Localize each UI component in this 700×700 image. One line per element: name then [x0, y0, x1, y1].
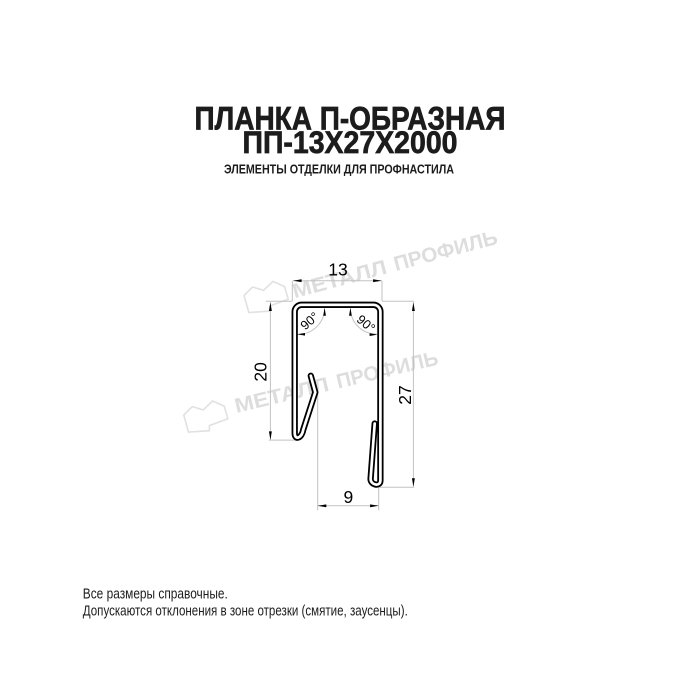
svg-text:ПРОФИЛЬ: ПРОФИЛЬ — [334, 347, 440, 394]
svg-text:90°: 90° — [297, 309, 321, 333]
svg-text:13: 13 — [328, 260, 347, 280]
svg-text:20: 20 — [250, 362, 270, 382]
svg-text:ПРОФИЛЬ: ПРОФИЛЬ — [391, 226, 500, 276]
svg-text:ПП-13Х27Х2000: ПП-13Х27Х2000 — [243, 125, 458, 160]
svg-text:ЭЛЕМЕНТЫ ОТДЕЛКИ ДЛЯ ПРОФНАСТИ: ЭЛЕМЕНТЫ ОТДЕЛКИ ДЛЯ ПРОФНАСТИЛА — [224, 162, 454, 177]
svg-text:9: 9 — [344, 487, 354, 507]
svg-text:Допускаются отклонения в зоне: Допускаются отклонения в зоне отрезки (с… — [83, 602, 408, 619]
svg-text:90°: 90° — [354, 312, 378, 336]
svg-text:27: 27 — [395, 385, 415, 404]
svg-text:Все размеры справочные.: Все размеры справочные. — [83, 586, 228, 603]
